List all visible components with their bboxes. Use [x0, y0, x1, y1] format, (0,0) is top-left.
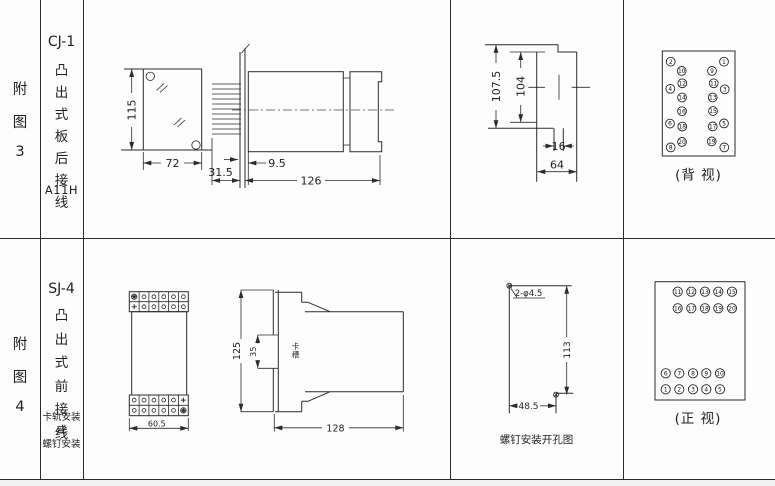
pin-grid: 1112131415161718192067891012345: [661, 287, 737, 394]
back-view-caption: (背 视): [675, 168, 722, 184]
model-sj4: SJ-4: [41, 281, 82, 297]
pin-grid: 2110912114314131615651817201987: [666, 57, 730, 152]
pin-number: 3: [691, 387, 695, 393]
wiring-char: 前: [55, 375, 69, 395]
dim-drill-vertical: 113: [563, 341, 573, 358]
wiring-char: 式: [55, 103, 69, 123]
pin-number: 3: [723, 87, 727, 93]
pin-number: 17: [688, 306, 696, 312]
fig4-char: 4: [15, 399, 24, 415]
slot-label-char: 卡: [292, 341, 300, 351]
pin-number: 6: [668, 122, 672, 128]
front-view-row2: 60.5: [120, 285, 200, 435]
pin-number: 5: [718, 387, 722, 393]
pin-number: 18: [701, 306, 709, 312]
pin-number: 1: [664, 387, 668, 393]
dim-pin-length: 31.5: [208, 166, 233, 179]
dim-side-length: 128: [326, 423, 344, 434]
pin-base-outline: [655, 282, 745, 400]
pin-number: 10: [716, 371, 724, 377]
wiring-char: 式: [55, 351, 69, 371]
pin-number: 11: [674, 290, 682, 296]
front-view-caption: (正 视): [675, 411, 722, 427]
pin-number: 7: [677, 371, 681, 377]
pin-number: 20: [728, 306, 736, 312]
pin-number: 8: [691, 371, 695, 377]
pin-number: 15: [709, 109, 717, 115]
panel-dimensions: 107.5 104 16 64: [490, 45, 577, 172]
pin-number: 2: [669, 60, 673, 66]
pin-number: 9: [704, 371, 708, 377]
side-view-row2: 125 35 卡 槽 128: [228, 282, 408, 434]
relay-side-outline: [212, 44, 395, 188]
fig4-char: 图: [13, 366, 28, 387]
dim-plate-width: 72: [166, 157, 180, 170]
datasheet-page: 附 图 3 CJ-1 凸 出 式 板 后 接 线 A11H 115 72: [0, 0, 775, 486]
dim-outer-height: 107.5: [490, 71, 503, 103]
dim-front-gap: 9.5: [268, 157, 286, 170]
pin-number: 13: [709, 96, 717, 102]
pin-base-outline: [662, 51, 735, 156]
fig3-char: 图: [13, 111, 28, 132]
pin-number: 16: [678, 109, 686, 115]
pin-number: 19: [715, 306, 723, 312]
dim-front-width: 60.5: [148, 419, 166, 428]
dim-side-height: 125: [232, 342, 243, 360]
mount-note: 卡轨安装 或 螺钉安装: [41, 411, 82, 451]
wiring-char: 凸: [55, 304, 69, 324]
panel-view-row1: 107.5 104 16 64: [480, 38, 595, 188]
pin-number: 15: [728, 290, 736, 296]
pin-number: 1: [722, 60, 726, 66]
wiring-char: 出: [55, 328, 69, 348]
code-a11h: A11H: [41, 183, 82, 197]
pin-number: 17: [709, 125, 717, 131]
dim-body-length: 126: [301, 175, 322, 188]
terminal-block-bottom: [129, 395, 188, 416]
pin-number: 8: [669, 146, 673, 152]
pin-diagram-front: 1112131415161718192067891012345 (正 视): [648, 275, 753, 430]
fig3-char: 附: [13, 78, 28, 99]
terminal-block-top: [129, 292, 188, 312]
side-dimensions-row1: 9.5 31.5 126: [208, 157, 380, 188]
fig4-char: 附: [13, 333, 28, 354]
pin-number: 5: [722, 122, 726, 128]
pin-diagram-back: 2110912114314131615651817201987 (背 视): [650, 42, 750, 187]
pin-number: 11: [710, 81, 718, 87]
side-view-row1: 9.5 31.5 126: [205, 40, 395, 190]
wiring-char: 出: [55, 81, 69, 101]
dim-drill-horizontal: 48.5: [518, 402, 538, 412]
pin-number: 14: [715, 290, 723, 296]
panel-outline: [485, 45, 590, 182]
dim-body-width: 64: [550, 159, 564, 172]
mount-note-line: 卡轨安装: [41, 411, 82, 424]
relay-body-front: [132, 312, 187, 395]
drill-diagram: 2-φ4.5 113 48.5 螺钉安装开孔图: [495, 275, 590, 450]
slot-label-char: 槽: [292, 350, 300, 360]
wiring-char: 后: [55, 147, 69, 167]
mount-note-line: 或: [41, 424, 82, 437]
pin-number: 9: [710, 69, 714, 75]
dim-slot: 35: [249, 347, 258, 357]
pin-number: 12: [679, 81, 687, 87]
pin-number: 4: [668, 87, 672, 93]
pin-number: 13: [701, 290, 709, 296]
pin-number: 19: [708, 140, 716, 146]
pin-number: 16: [674, 306, 682, 312]
pin-number: 18: [679, 125, 687, 131]
pin-number: 6: [664, 371, 668, 377]
page-bottom-strip: [0, 480, 775, 486]
wiring-char: 板: [55, 125, 69, 145]
pin-number: 20: [678, 140, 686, 146]
figure-label-4: 附 图 4: [0, 333, 40, 415]
pin-number: 14: [678, 96, 686, 102]
mount-note-line: 螺钉安装: [41, 438, 82, 451]
pin-number: 4: [704, 387, 708, 393]
dim-inner-height: 104: [515, 76, 528, 97]
dim-plate-height: 115: [126, 100, 139, 121]
front-dimensions-row2: 60.5: [129, 418, 188, 431]
hole-spec-label: 2-φ4.5: [515, 289, 543, 299]
wiring-char: 凸: [55, 59, 69, 79]
pin-number: 10: [678, 69, 686, 75]
pin-number: 2: [677, 387, 681, 393]
figure-label-3: 附 图 3: [0, 78, 40, 160]
pin-number: 7: [722, 146, 726, 152]
dim-tab-width: 16: [552, 140, 566, 153]
fig3-char: 3: [15, 144, 24, 160]
pin-number: 12: [688, 290, 696, 296]
model-cj1: CJ-1: [41, 34, 82, 50]
drill-caption: 螺钉安装开孔图: [500, 433, 574, 446]
